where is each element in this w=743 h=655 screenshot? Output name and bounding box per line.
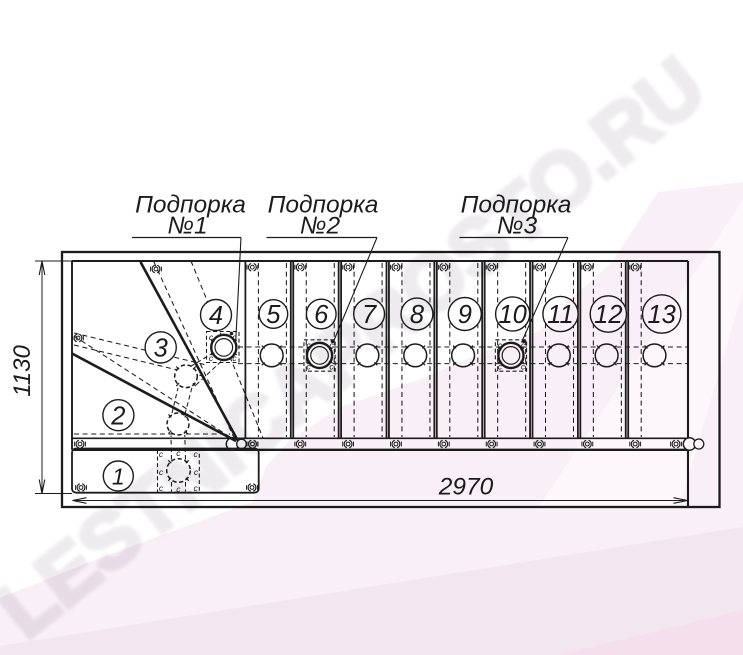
svg-text:1130: 1130 [9, 345, 36, 397]
svg-text:№1: №1 [167, 213, 207, 240]
svg-text:4: 4 [209, 302, 223, 330]
svg-text:3: 3 [154, 335, 168, 363]
svg-text:10: 10 [498, 301, 526, 329]
svg-text:2: 2 [110, 402, 125, 430]
svg-text:№2: №2 [300, 213, 341, 240]
svg-text:5: 5 [266, 301, 281, 329]
